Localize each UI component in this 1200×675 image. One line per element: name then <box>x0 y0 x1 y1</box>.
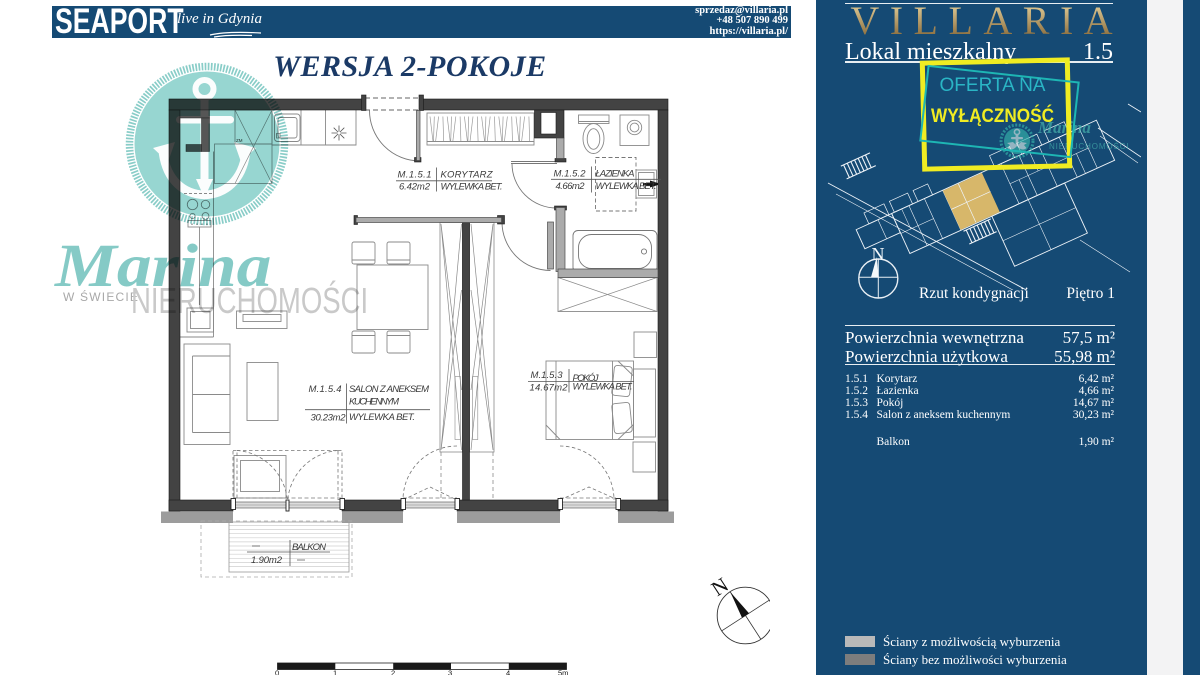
svg-text:4.66m2: 4.66m2 <box>556 181 586 192</box>
svg-text:WYLEWKA BET.: WYLEWKA BET. <box>441 182 503 193</box>
svg-text:BALKON: BALKON <box>292 542 326 553</box>
svg-text:1.90m2: 1.90m2 <box>251 555 283 566</box>
svg-text:M.1.5.4: M.1.5.4 <box>309 384 342 395</box>
svg-text:5m: 5m <box>558 669 568 675</box>
svg-text:ŁAZIENKA: ŁAZIENKA <box>596 169 635 180</box>
svg-text:WYLEWKA BET.: WYLEWKA BET. <box>349 412 415 423</box>
svg-text:KUCHENNYM: KUCHENNYM <box>349 397 399 408</box>
svg-text:3: 3 <box>448 669 452 675</box>
svg-text:14.67m2: 14.67m2 <box>530 383 569 394</box>
svg-text:WYLEWKA BET.: WYLEWKA BET. <box>573 382 633 393</box>
svg-text:0: 0 <box>275 669 279 675</box>
svg-text:4: 4 <box>506 669 510 675</box>
svg-text:N: N <box>707 573 733 601</box>
svg-text:2: 2 <box>391 669 395 675</box>
svg-text:N: N <box>872 244 885 264</box>
svg-text:1: 1 <box>333 669 337 675</box>
svg-text:M.1.5.3: M.1.5.3 <box>531 370 564 381</box>
svg-text:6.42m2: 6.42m2 <box>399 182 431 193</box>
svg-text:ZM: ZM <box>236 138 243 143</box>
svg-text:WYLEWKA BET.: WYLEWKA BET. <box>596 181 657 192</box>
svg-text:SALON Z ANEKSEM: SALON Z ANEKSEM <box>349 384 429 395</box>
svg-text:KORYTARZ: KORYTARZ <box>441 170 494 181</box>
svg-text:M.1.5.1: M.1.5.1 <box>398 170 432 181</box>
svg-text:30.23m2: 30.23m2 <box>311 413 347 424</box>
svg-text:M.1.5.2: M.1.5.2 <box>554 169 587 180</box>
